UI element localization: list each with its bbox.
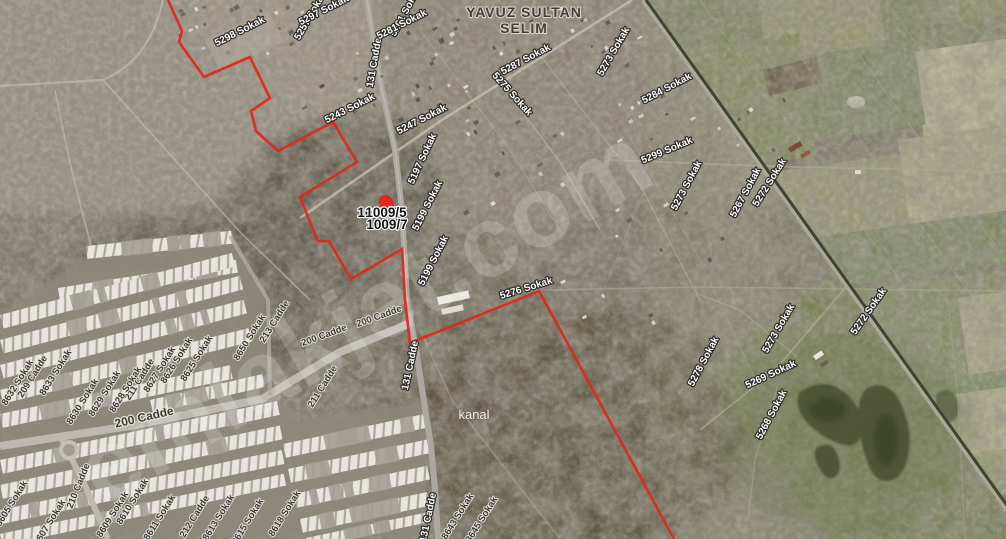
- svg-text:SELIM: SELIM: [500, 20, 548, 36]
- svg-text:1009/7: 1009/7: [366, 217, 407, 232]
- svg-text:YAVUZ SULTAN: YAVUZ SULTAN: [466, 4, 582, 20]
- svg-text:kanal: kanal: [458, 407, 489, 422]
